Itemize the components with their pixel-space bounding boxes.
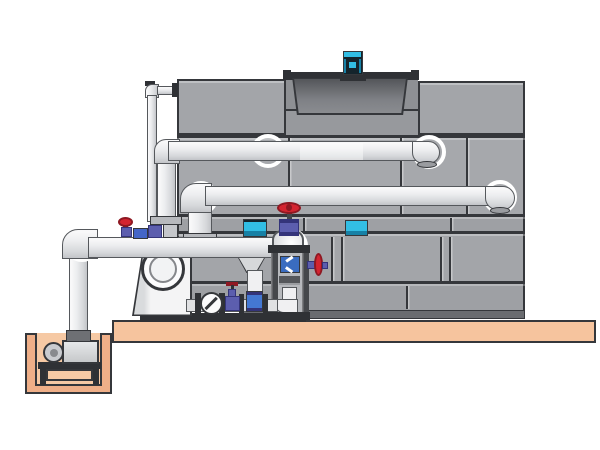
fan-motor-fin	[344, 59, 346, 73]
stand-top-plate	[268, 245, 310, 253]
column-tee-fitting	[246, 291, 263, 312]
flow-arrow-icon	[285, 266, 293, 273]
panel-seam	[303, 218, 305, 231]
panel-seam	[331, 237, 333, 281]
sump-pump-body	[62, 340, 99, 364]
sump-riser-pipe	[69, 252, 88, 336]
flow-indicator	[280, 256, 300, 273]
inline-pump-motor	[243, 219, 267, 237]
upper-inlet-pipe	[168, 141, 416, 161]
sump-pump-stand-base	[46, 369, 93, 381]
globe-valve-body	[225, 296, 240, 311]
side-valve-tip	[322, 262, 328, 269]
sump-pump-motor-hub	[50, 349, 58, 357]
stand-bottom-plate	[268, 312, 310, 320]
check-valve	[200, 292, 223, 315]
upper-pipe-riser	[157, 158, 176, 220]
sump-pump-stand-leg	[93, 369, 99, 385]
diagram-canvas	[0, 0, 600, 450]
basin-control-box	[345, 220, 368, 236]
concrete-slab	[112, 320, 596, 343]
panel-seam	[440, 237, 442, 281]
sump-riser-coupling	[66, 330, 91, 342]
fan-motor-fin	[359, 59, 361, 73]
makeup-valve-body	[121, 227, 132, 237]
panel-seam	[449, 237, 451, 281]
tower-top-box-left	[177, 79, 286, 135]
pipe-flange	[263, 294, 268, 314]
lower-inlet-pipe	[205, 186, 491, 206]
upper-pipe-sleeve	[300, 143, 363, 160]
fan-motor-window	[348, 61, 357, 69]
panel-seam	[450, 218, 452, 231]
main-suction-pipe	[88, 237, 278, 258]
fan-motor-base	[340, 74, 366, 81]
fan-shroud	[293, 79, 407, 113]
gate-valve-hub	[286, 204, 292, 211]
makeup-valve-handwheel	[118, 217, 133, 227]
fan-motor	[343, 51, 363, 75]
panel-seam	[341, 237, 343, 281]
gate-valve-body	[279, 219, 299, 236]
makeup-blue-valve	[133, 228, 148, 239]
makeup-union-fitting	[163, 224, 178, 238]
panel-seam	[406, 286, 408, 309]
flow-arrow-icon	[285, 256, 293, 263]
upper-pipe-end-cap	[417, 161, 437, 168]
makeup-purple-valve	[148, 225, 162, 238]
pump-inlet-bore	[149, 255, 177, 283]
check-valve-disc	[204, 297, 217, 310]
lower-pipe-end-cap	[490, 207, 510, 214]
standpipe-flange	[172, 83, 178, 97]
tower-top-box-right	[418, 81, 525, 135]
inline-pump-column	[247, 270, 263, 293]
stand-label-plate	[279, 276, 300, 285]
fan-motor-top	[344, 52, 361, 58]
